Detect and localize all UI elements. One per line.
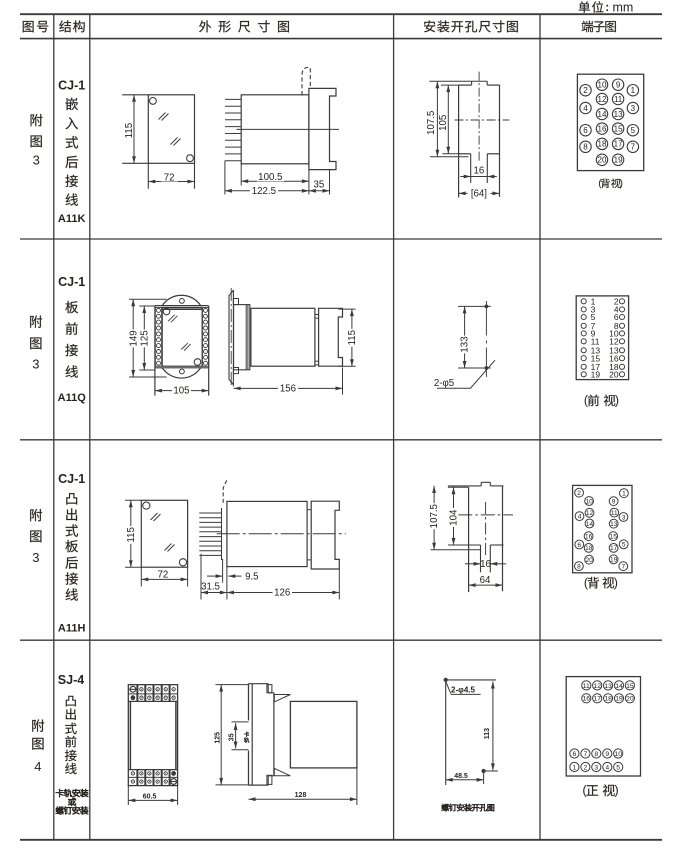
svg-text:4: 4 [605, 764, 609, 771]
svg-text:104: 104 [449, 509, 460, 526]
svg-text:CJ-1: CJ-1 [58, 79, 85, 93]
svg-text:mm: mm [613, 1, 634, 15]
svg-text:16: 16 [474, 166, 485, 177]
svg-text:SJ-4: SJ-4 [58, 673, 84, 687]
svg-text:18: 18 [585, 545, 593, 552]
svg-text:105: 105 [173, 386, 189, 397]
svg-text:[64]: [64] [471, 189, 487, 200]
svg-text:5: 5 [616, 764, 620, 771]
svg-text:3: 3 [32, 550, 39, 565]
svg-text:6: 6 [577, 542, 581, 549]
svg-text:10: 10 [614, 751, 622, 758]
svg-text:15: 15 [610, 534, 618, 541]
svg-text:115: 115 [126, 527, 137, 542]
svg-text:17: 17 [610, 545, 618, 552]
svg-text:133: 133 [460, 336, 471, 352]
svg-text:115: 115 [124, 123, 135, 138]
svg-text:): ) [615, 393, 619, 407]
svg-text:115: 115 [347, 330, 358, 345]
svg-text:4: 4 [583, 104, 588, 113]
svg-text:10: 10 [585, 498, 593, 505]
svg-text:14: 14 [615, 683, 623, 690]
svg-text:6: 6 [583, 126, 588, 135]
svg-text:11: 11 [611, 510, 618, 517]
svg-text:107.5: 107.5 [429, 504, 440, 528]
svg-text:72: 72 [158, 569, 169, 580]
svg-text:): ) [614, 782, 618, 797]
svg-text:3: 3 [594, 764, 598, 771]
svg-text:9: 9 [605, 751, 609, 758]
svg-text:): ) [614, 576, 618, 590]
svg-text:20: 20 [626, 696, 634, 703]
svg-text:7: 7 [631, 143, 636, 152]
svg-text:5: 5 [631, 126, 636, 135]
svg-text:72: 72 [164, 172, 175, 183]
svg-text:12: 12 [593, 683, 601, 690]
svg-text:35: 35 [229, 733, 236, 741]
svg-text:11: 11 [583, 683, 590, 690]
svg-text:3: 3 [33, 152, 40, 167]
svg-text:48.5: 48.5 [454, 773, 468, 780]
svg-text:125: 125 [140, 330, 151, 346]
svg-text:64: 64 [480, 575, 491, 586]
svg-text:14: 14 [586, 521, 594, 528]
svg-text:16: 16 [585, 534, 593, 541]
svg-text:2-φ4.5: 2-φ4.5 [451, 685, 476, 694]
svg-text:13: 13 [604, 683, 612, 690]
svg-text:18: 18 [604, 696, 612, 703]
svg-text:A11H: A11H [58, 623, 86, 635]
svg-text:4: 4 [578, 513, 582, 520]
svg-text:1: 1 [573, 764, 577, 771]
svg-text:15: 15 [614, 124, 623, 133]
svg-text:A11Q: A11Q [58, 392, 87, 404]
svg-text:20: 20 [598, 156, 607, 165]
svg-text:60.5: 60.5 [143, 794, 157, 801]
svg-text:35: 35 [314, 179, 325, 190]
svg-text:20: 20 [609, 369, 619, 379]
svg-text::: : [605, 0, 609, 14]
svg-text:8: 8 [583, 143, 588, 152]
svg-text:3: 3 [631, 104, 636, 113]
svg-text:2: 2 [583, 86, 588, 95]
svg-text:12: 12 [586, 510, 594, 517]
svg-text:): ) [620, 178, 624, 190]
svg-text:A11K: A11K [58, 213, 86, 225]
svg-text:14: 14 [598, 110, 607, 119]
svg-text:19: 19 [610, 557, 618, 564]
svg-text:13: 13 [610, 521, 618, 528]
svg-text:12: 12 [598, 95, 607, 104]
svg-text:7: 7 [621, 564, 625, 571]
svg-text:9: 9 [616, 81, 621, 90]
svg-text:16: 16 [598, 124, 607, 133]
svg-text:122.5: 122.5 [252, 186, 276, 197]
svg-text:113: 113 [484, 728, 491, 739]
svg-text:125: 125 [214, 732, 221, 744]
svg-text:2-φ5: 2-φ5 [434, 378, 454, 389]
svg-text:CJ-1: CJ-1 [58, 472, 85, 486]
svg-text:7: 7 [584, 751, 588, 758]
svg-text:3: 3 [32, 356, 39, 371]
svg-text:15: 15 [626, 683, 634, 690]
svg-text:CJ-1: CJ-1 [58, 275, 85, 289]
svg-text:18: 18 [598, 140, 607, 149]
svg-text:100.5: 100.5 [258, 172, 282, 183]
svg-text:19: 19 [614, 156, 623, 165]
svg-text:19: 19 [615, 696, 623, 703]
svg-text:11: 11 [614, 95, 623, 104]
svg-text:107.5: 107.5 [426, 111, 437, 135]
svg-text:149: 149 [128, 330, 139, 346]
svg-text:19: 19 [591, 369, 601, 379]
svg-text:9.5: 9.5 [245, 571, 258, 582]
svg-text:1: 1 [622, 491, 626, 498]
svg-text:16: 16 [583, 696, 591, 703]
svg-text:2: 2 [584, 764, 588, 771]
svg-text:2: 2 [577, 490, 581, 497]
svg-text:5: 5 [622, 542, 626, 549]
svg-text:9: 9 [612, 499, 616, 506]
svg-text:126: 126 [274, 588, 290, 599]
svg-text:4: 4 [34, 759, 41, 774]
svg-text:1: 1 [631, 86, 636, 95]
svg-text:31.5: 31.5 [201, 582, 220, 593]
svg-text:16: 16 [480, 559, 491, 570]
svg-text:128: 128 [295, 792, 307, 799]
svg-text:3: 3 [622, 514, 626, 521]
svg-text:156: 156 [280, 383, 296, 394]
svg-text:17: 17 [593, 696, 601, 703]
svg-text:8: 8 [577, 563, 581, 570]
svg-text:20: 20 [585, 557, 593, 564]
svg-text:105: 105 [438, 115, 449, 131]
svg-text:13: 13 [614, 110, 623, 119]
svg-text:8: 8 [594, 751, 598, 758]
svg-text:6: 6 [573, 751, 577, 758]
svg-text:17: 17 [614, 140, 623, 149]
svg-text:10: 10 [598, 81, 607, 90]
